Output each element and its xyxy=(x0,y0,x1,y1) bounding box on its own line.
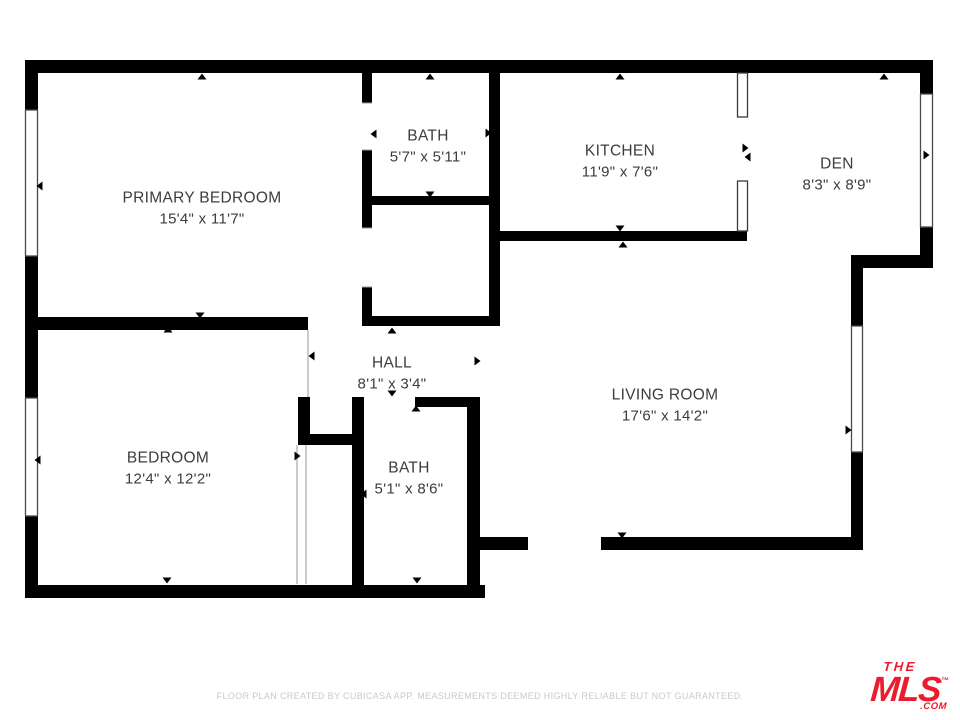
opening-marker-icon xyxy=(198,74,207,80)
room-dimensions: 11'9" x 7'6" xyxy=(582,162,658,182)
opening-marker-icon xyxy=(616,226,625,232)
room-label-primary-bedroom: PRIMARY BEDROOM 15'4" x 11'7" xyxy=(123,189,282,230)
room-dimensions: 5'1" x 8'6" xyxy=(375,479,444,499)
room-name: LIVING ROOM xyxy=(612,386,719,407)
opening-marker-icon xyxy=(475,357,481,366)
room-name: KITCHEN xyxy=(582,142,658,163)
room-name: BEDROOM xyxy=(125,449,211,470)
room-dimensions: 15'4" x 11'7" xyxy=(123,209,282,229)
room-name: HALL xyxy=(358,354,427,375)
room-dimensions: 12'4" x 12'2" xyxy=(125,469,211,489)
logo-trademark: ™ xyxy=(940,676,949,685)
room-name: BATH xyxy=(375,459,444,480)
opening-marker-icon xyxy=(309,352,315,361)
room-name: BATH xyxy=(390,127,466,148)
room-label-bath-upper: BATH 5'7" x 5'11" xyxy=(390,127,466,168)
opening-marker-icon xyxy=(163,578,172,584)
room-dimensions: 5'7" x 5'11" xyxy=(390,147,466,167)
room-label-den: DEN 8'3" x 8'9" xyxy=(803,155,872,196)
opening-marker-icon xyxy=(388,328,397,334)
themls-logo: THE MLS™ .COM xyxy=(869,660,950,712)
opening-marker-icon xyxy=(846,426,852,435)
room-label-kitchen: KITCHEN 11'9" x 7'6" xyxy=(582,142,658,183)
room-label-bedroom: BEDROOM 12'4" x 12'2" xyxy=(125,449,211,490)
opening-marker-icon xyxy=(371,130,377,139)
opening-marker-icon xyxy=(745,153,751,162)
floor-plan-page: PRIMARY BEDROOM 15'4" x 11'7" BATH 5'7" … xyxy=(0,0,960,720)
opening-marker-icon xyxy=(880,74,889,80)
floor-plan-drawing xyxy=(0,0,960,720)
room-label-hall: HALL 8'1" x 3'4" xyxy=(358,354,427,395)
opening-marker-icon xyxy=(413,578,422,584)
opening-marker-icon xyxy=(616,74,625,80)
opening-marker-icon xyxy=(743,144,749,153)
room-label-bath-lower: BATH 5'1" x 8'6" xyxy=(375,459,444,500)
room-name: PRIMARY BEDROOM xyxy=(123,189,282,210)
room-label-living-room: LIVING ROOM 17'6" x 14'2" xyxy=(612,386,719,427)
disclaimer-text: FLOOR PLAN CREATED BY CUBICASA APP. MEAS… xyxy=(0,691,960,701)
room-dimensions: 17'6" x 14'2" xyxy=(612,406,719,426)
room-name: DEN xyxy=(803,155,872,176)
room-dimensions: 8'1" x 3'4" xyxy=(358,374,427,394)
room-dimensions: 8'3" x 8'9" xyxy=(803,175,872,195)
opening-marker-icon xyxy=(619,242,628,248)
opening-marker-icon xyxy=(426,74,435,80)
opening-markers xyxy=(35,74,930,584)
